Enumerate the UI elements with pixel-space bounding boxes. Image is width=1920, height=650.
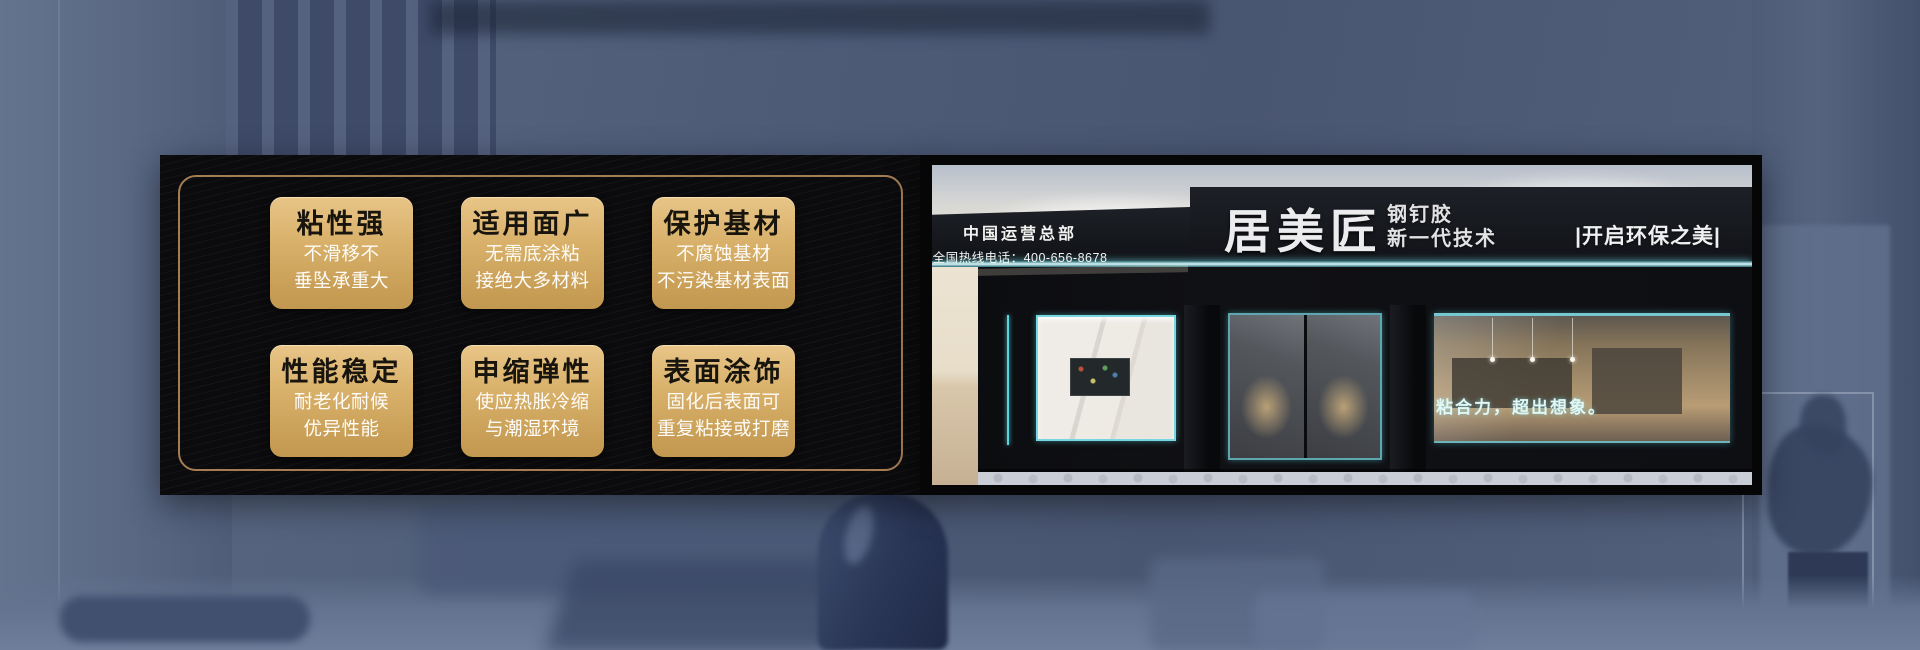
- interior-glow: [1318, 375, 1369, 439]
- feature-grid: 粘性强 不滑移不 垂坠承重大 适用面广 无需底涂粘 接绝大多材料 保护基材 不腐…: [270, 197, 795, 457]
- pendant-light: [1532, 318, 1533, 358]
- hotline-label: 全国热线电话：400-656-8678: [932, 247, 1108, 266]
- promo-banner-canvas: 粘性强 不滑移不 垂坠承重大 适用面广 无需底涂粘 接绝大多材料 保护基材 不腐…: [0, 0, 1920, 650]
- background-vase: [818, 492, 948, 650]
- feature-card-surface-finish: 表面涂饰 固化后表面可 重复粘接或打磨: [652, 345, 795, 457]
- feature-panel: 粘性强 不滑移不 垂坠承重大 适用面广 无需底涂粘 接绝大多材料 保护基材 不腐…: [160, 155, 925, 495]
- brand-subtitle-block: 钢钉胶 新一代技术: [1387, 203, 1497, 251]
- background-low-object: [60, 596, 310, 642]
- feature-line: 不污染基材表面: [652, 268, 795, 294]
- background-wall-seam: [58, 0, 60, 650]
- window-slogan: 粘合力，超出想象。: [1436, 393, 1607, 418]
- feature-line: 优异性能: [270, 416, 413, 442]
- interior-glow: [1241, 375, 1292, 439]
- background-ceiling-shadow: [430, 0, 1210, 34]
- feature-line: 使应热胀冷缩: [461, 389, 604, 415]
- feature-card-elasticity: 申缩弹性 使应热胀冷缩 与潮湿环境: [461, 345, 604, 457]
- door-glass-pane: [1304, 315, 1381, 458]
- feature-card-stability: 性能稳定 耐老化耐候 优异性能: [270, 345, 413, 457]
- facade-column: [1184, 305, 1220, 472]
- feature-line: 垂坠承重大: [270, 268, 413, 294]
- storefront-photo: 中国运营总部 全国热线电话：400-656-8678 居美匠 钢钉胶 新一代技术…: [932, 165, 1752, 485]
- feature-line: 接绝大多材料: [461, 268, 604, 294]
- facade-column: [1390, 305, 1426, 472]
- pavement: [978, 472, 1752, 485]
- feature-line: 重复粘接或打磨: [652, 416, 795, 442]
- feature-title: 保护基材: [652, 209, 795, 240]
- background-table-silhouette: [1255, 592, 1475, 650]
- pendant-light: [1492, 318, 1493, 358]
- storefront-photo-frame: 中国运营总部 全国热线电话：400-656-8678 居美匠 钢钉胶 新一代技术…: [920, 155, 1762, 495]
- right-display-window: [1434, 313, 1730, 443]
- eco-slogan: |开启环保之美|: [1544, 220, 1752, 250]
- door-glass-pane: [1230, 315, 1304, 458]
- feature-title: 表面涂饰: [652, 357, 795, 388]
- feature-card-substrate-protection: 保护基材 不腐蚀基材 不污染基材表面: [652, 197, 795, 309]
- feature-line: 耐老化耐候: [270, 389, 413, 415]
- product-display-board: [1070, 358, 1130, 396]
- pendant-light: [1572, 318, 1573, 358]
- product-name: 钢钉胶: [1387, 203, 1497, 227]
- feature-title: 粘性强: [270, 209, 413, 240]
- hq-label: 中国运营总部: [932, 220, 1108, 244]
- feature-line: 无需底涂粘: [461, 241, 604, 267]
- feature-card-adhesion: 粘性强 不滑移不 垂坠承重大: [270, 197, 413, 309]
- led-vertical: [1007, 315, 1009, 445]
- feature-line: 固化后表面可: [652, 389, 795, 415]
- brand-name: 居美匠: [1224, 193, 1383, 262]
- feature-title: 申缩弹性: [461, 357, 604, 388]
- feature-line: 与潮湿环境: [461, 416, 604, 442]
- background-plant-silhouette: [1800, 395, 1846, 455]
- feature-line: 不腐蚀基材: [652, 241, 795, 267]
- hq-block: 中国运营总部 全国热线电话：400-656-8678: [932, 220, 1108, 266]
- entrance-door: [1228, 313, 1382, 460]
- feature-card-applicability: 适用面广 无需底涂粘 接绝大多材料: [461, 197, 604, 309]
- feature-title: 适用面广: [461, 209, 604, 240]
- outdoor-side-view: [932, 267, 978, 485]
- feature-line: 不滑移不: [270, 241, 413, 267]
- tech-label: 新一代技术: [1387, 227, 1497, 251]
- feature-title: 性能稳定: [270, 357, 413, 388]
